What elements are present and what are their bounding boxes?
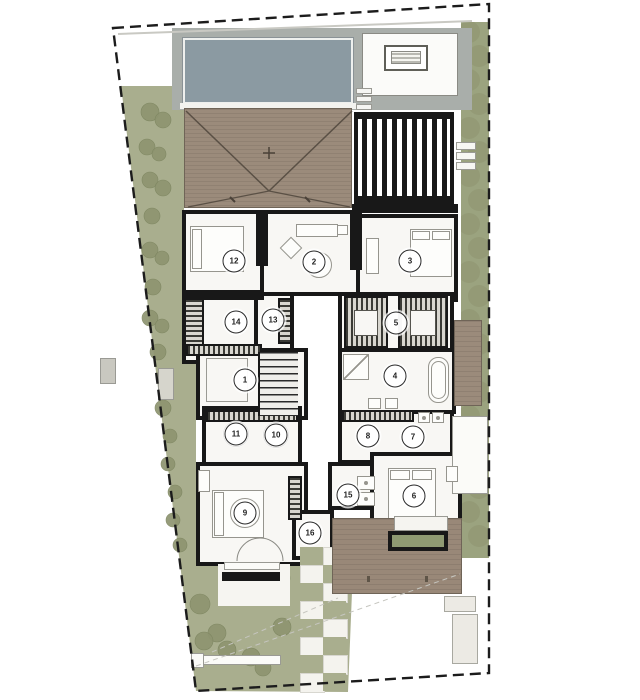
floor-plan-canvas: 12345678910111213141516 (0, 0, 640, 700)
tree (155, 112, 171, 128)
storage-band (186, 344, 262, 356)
dryer (432, 412, 444, 423)
swimming-pool (183, 38, 353, 104)
path-tile (300, 619, 323, 637)
hip-roof-garage (184, 108, 352, 208)
path-tile (323, 601, 346, 619)
tree (161, 457, 175, 471)
pavilion-louvre (391, 51, 421, 64)
tree (168, 485, 182, 499)
room-badge-16: 16 (299, 522, 322, 545)
room-badge-2: 2 (303, 251, 326, 274)
bidet (385, 398, 398, 409)
path-tile (300, 547, 323, 565)
path-tile (300, 565, 325, 585)
tree (139, 139, 155, 155)
terrace-bench (222, 572, 280, 581)
bed-pillow (192, 229, 202, 269)
path-tile (300, 673, 325, 693)
pool-step (356, 104, 372, 110)
tree (145, 279, 161, 295)
bed-pillow (432, 231, 450, 240)
path-tile (300, 601, 325, 621)
room-badge-7: 7 (402, 426, 425, 449)
deck-joint-mark (425, 576, 428, 582)
wall-segment (256, 210, 268, 266)
roof-ridge-lines (185, 109, 353, 209)
side-court (452, 416, 488, 494)
toilet (446, 466, 458, 482)
tree (155, 319, 169, 333)
garden-pad (191, 653, 204, 668)
pergola-slat (382, 118, 387, 198)
tree (142, 310, 158, 326)
bed-pillow (412, 470, 432, 480)
path-tile (323, 655, 348, 675)
pergola-base-wall (352, 204, 458, 213)
pergola-slat (442, 118, 447, 198)
tree (144, 208, 160, 224)
room-badge-15: 15 (337, 484, 360, 507)
shower (343, 354, 369, 380)
closet-aisle (410, 310, 436, 336)
dresser (366, 238, 379, 274)
tree (141, 103, 159, 121)
room-badge-9: 9 (234, 502, 257, 525)
meter-box (100, 358, 116, 384)
wardrobe-counter (342, 410, 414, 422)
room-badge-12: 12 (223, 250, 246, 273)
bedroom-terrace (218, 564, 290, 606)
dryer (357, 492, 375, 506)
utility-pad (158, 368, 174, 400)
bed-pillow (390, 470, 410, 480)
room-badge-4: 4 (384, 365, 407, 388)
deck-planter (394, 516, 448, 531)
wall-segment (350, 210, 362, 270)
terrace-step (224, 562, 280, 570)
garden-path (203, 655, 281, 665)
garden-step (452, 614, 478, 664)
side-wood-deck (454, 320, 482, 406)
washer (357, 476, 375, 490)
room-badge-1: 1 (234, 369, 257, 392)
tree (155, 251, 169, 265)
room-badge-13: 13 (262, 309, 285, 332)
deck-joint-mark (367, 576, 370, 582)
tree (190, 594, 210, 614)
path-tile (300, 637, 325, 657)
room-badge-10: 10 (265, 424, 288, 447)
tree (163, 429, 177, 443)
tree (150, 344, 166, 360)
staircase (258, 352, 298, 416)
tree (142, 172, 158, 188)
pergola-slatted-roof (354, 112, 454, 204)
pergola-slat (362, 118, 367, 198)
deck-green-rug (388, 531, 448, 551)
tree (152, 147, 166, 161)
pergola-slat (422, 118, 427, 198)
room-badge-8: 8 (357, 425, 380, 448)
tree (155, 400, 171, 416)
pergola-slat (372, 118, 377, 198)
pergola-slat (392, 118, 397, 198)
room-badge-5: 5 (385, 312, 408, 335)
entry-step (456, 142, 476, 150)
pool-step (356, 88, 372, 94)
pergola-slat (402, 118, 407, 198)
garden-step (444, 596, 476, 612)
tree (173, 538, 187, 552)
tree (208, 624, 226, 642)
room-badge-3: 3 (399, 250, 422, 273)
pergola-rail (450, 112, 454, 204)
entry-step (456, 152, 476, 160)
closet-aisle (354, 310, 378, 336)
pergola-rail (354, 112, 358, 204)
tree (155, 180, 171, 196)
washer (418, 412, 430, 423)
pool-step (356, 96, 372, 102)
toilet (368, 398, 381, 409)
tree (166, 513, 180, 527)
room-badge-11: 11 (225, 423, 248, 446)
tree (195, 632, 213, 650)
path-tile (323, 673, 346, 691)
path-tile (300, 583, 323, 601)
bed-pillow (214, 492, 224, 536)
pergola-slat (412, 118, 417, 198)
sofa (296, 224, 338, 237)
tree (142, 242, 158, 258)
path-tile (323, 637, 346, 655)
wardrobe (288, 476, 302, 520)
pergola-slat (432, 118, 437, 198)
side-table (337, 225, 348, 235)
entry-step (456, 162, 476, 170)
dresser (198, 470, 210, 492)
room-badge-14: 14 (225, 311, 248, 334)
bathtub-basin (431, 361, 446, 399)
tree (273, 618, 291, 636)
path-tile (300, 655, 323, 673)
path-tile (323, 619, 348, 639)
bed-pillow (412, 231, 430, 240)
room-badge-6: 6 (403, 485, 426, 508)
